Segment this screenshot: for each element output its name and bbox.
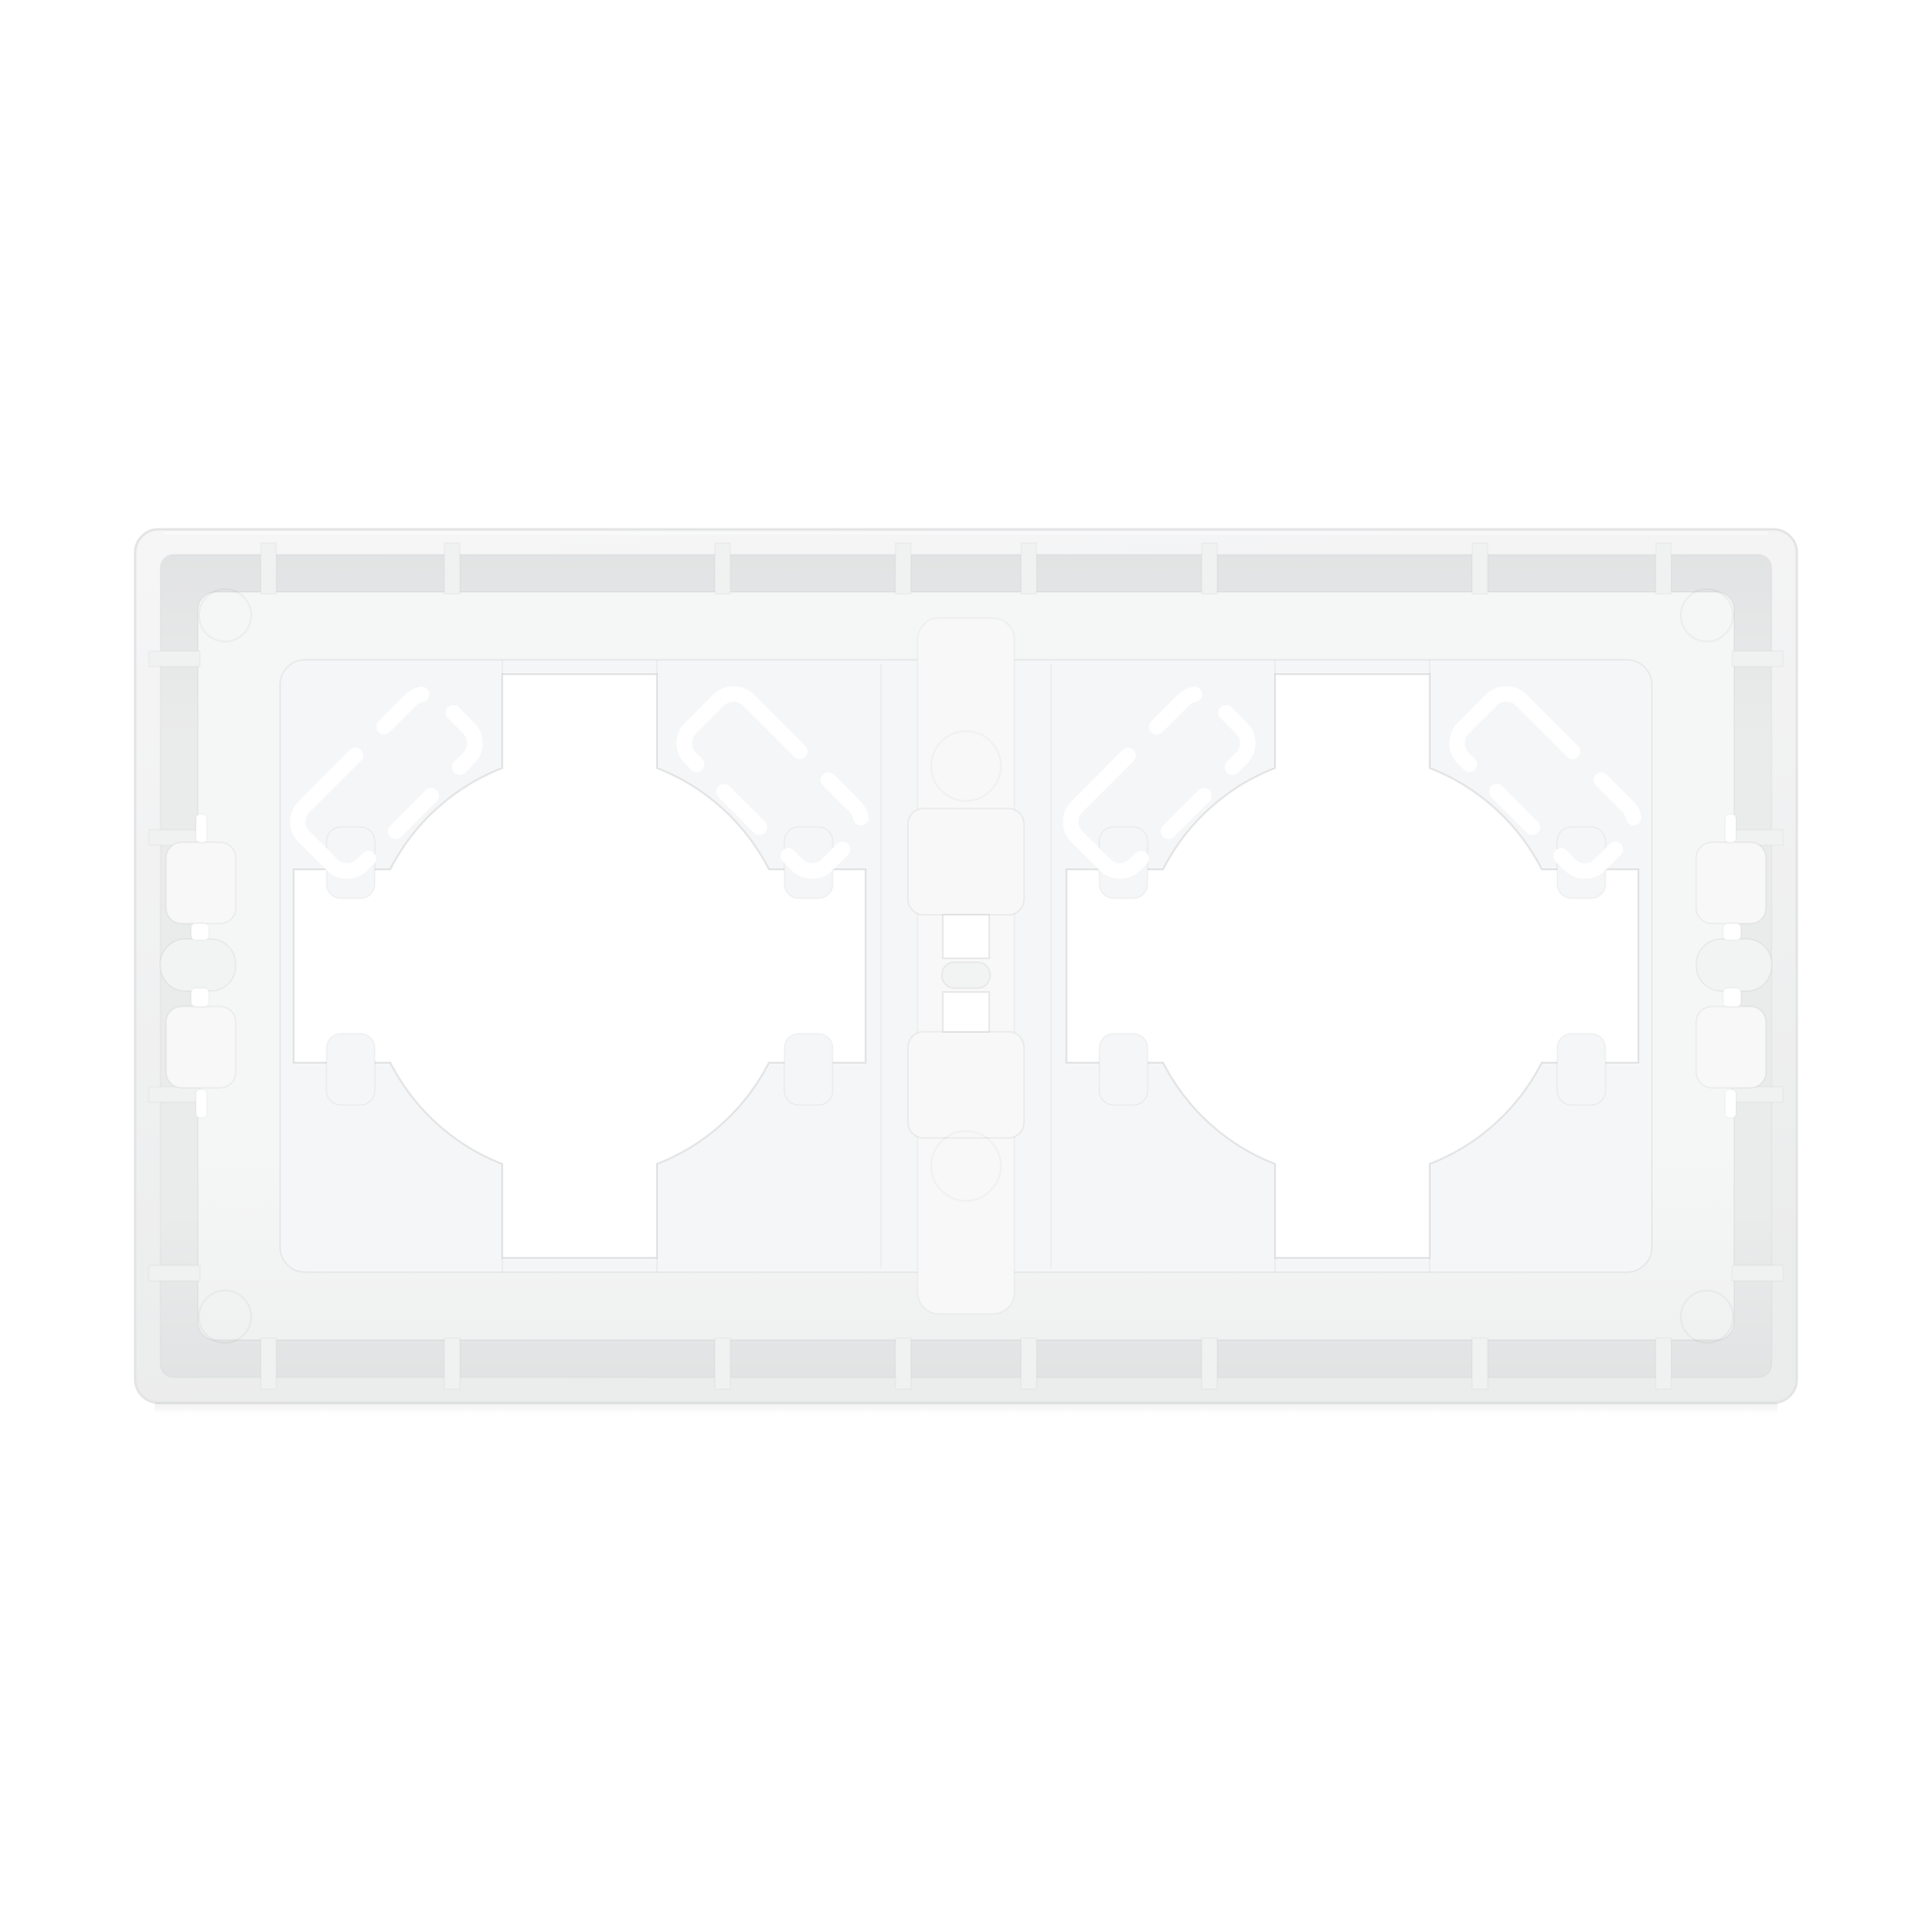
rim-tab: [149, 1087, 200, 1102]
rim-tab: [444, 1338, 460, 1389]
rim-tab: [1732, 651, 1783, 667]
latch-pin: [160, 939, 236, 991]
latch-slit: [1723, 923, 1741, 940]
rim-tab: [715, 1338, 730, 1389]
drop-shadow: [155, 1403, 1777, 1414]
rim-tab: [1202, 1338, 1217, 1389]
gusset-hook: [1557, 1034, 1605, 1105]
bridge-cutout: [943, 915, 989, 958]
latch-slit: [1723, 988, 1741, 1007]
rim-tab: [715, 543, 730, 594]
rim-tab: [1472, 543, 1488, 594]
rim-tab: [1732, 1265, 1783, 1281]
bridge-tab: [908, 1032, 1024, 1138]
side-latch-right: [1696, 814, 1772, 1118]
gusset-hook: [1099, 1034, 1148, 1105]
rim-tab: [895, 543, 911, 594]
bridge-tab: [908, 809, 1024, 915]
rim-tab: [895, 1338, 911, 1389]
latch-block: [1696, 1007, 1766, 1088]
product-photo: [0, 0, 1932, 1932]
bridge-pin: [942, 962, 990, 988]
latch-pin: [1696, 939, 1772, 991]
rim-tab: [1202, 543, 1217, 594]
wall-frame-back-svg: [0, 0, 1932, 1932]
cast-shadow: [155, 1403, 1777, 1414]
rim-tab: [261, 543, 276, 594]
bridge-cutout: [943, 992, 989, 1032]
rim-tab: [1472, 1338, 1488, 1389]
rim-tab: [1656, 543, 1671, 594]
gusset-hook: [784, 1034, 833, 1105]
latch-slit: [196, 1090, 207, 1118]
rim-tab: [1021, 543, 1037, 594]
rim-tab: [444, 543, 460, 594]
latch-slit: [1725, 814, 1736, 842]
latch-block: [166, 1007, 236, 1088]
rim-tab: [1656, 1338, 1671, 1389]
latch-slit: [196, 814, 207, 842]
side-latch-left: [160, 814, 236, 1118]
latch-slit: [1725, 1090, 1736, 1118]
latch-block: [166, 842, 236, 923]
rim-tab: [1021, 1338, 1037, 1389]
gusset-hook: [327, 1034, 375, 1105]
latch-block: [1696, 842, 1766, 923]
latch-slit: [191, 923, 209, 940]
rim-tab: [1732, 1087, 1783, 1102]
rim-tab: [149, 651, 200, 667]
rim-tab: [149, 1265, 200, 1281]
latch-slit: [191, 988, 209, 1007]
rim-tab: [261, 1338, 276, 1389]
